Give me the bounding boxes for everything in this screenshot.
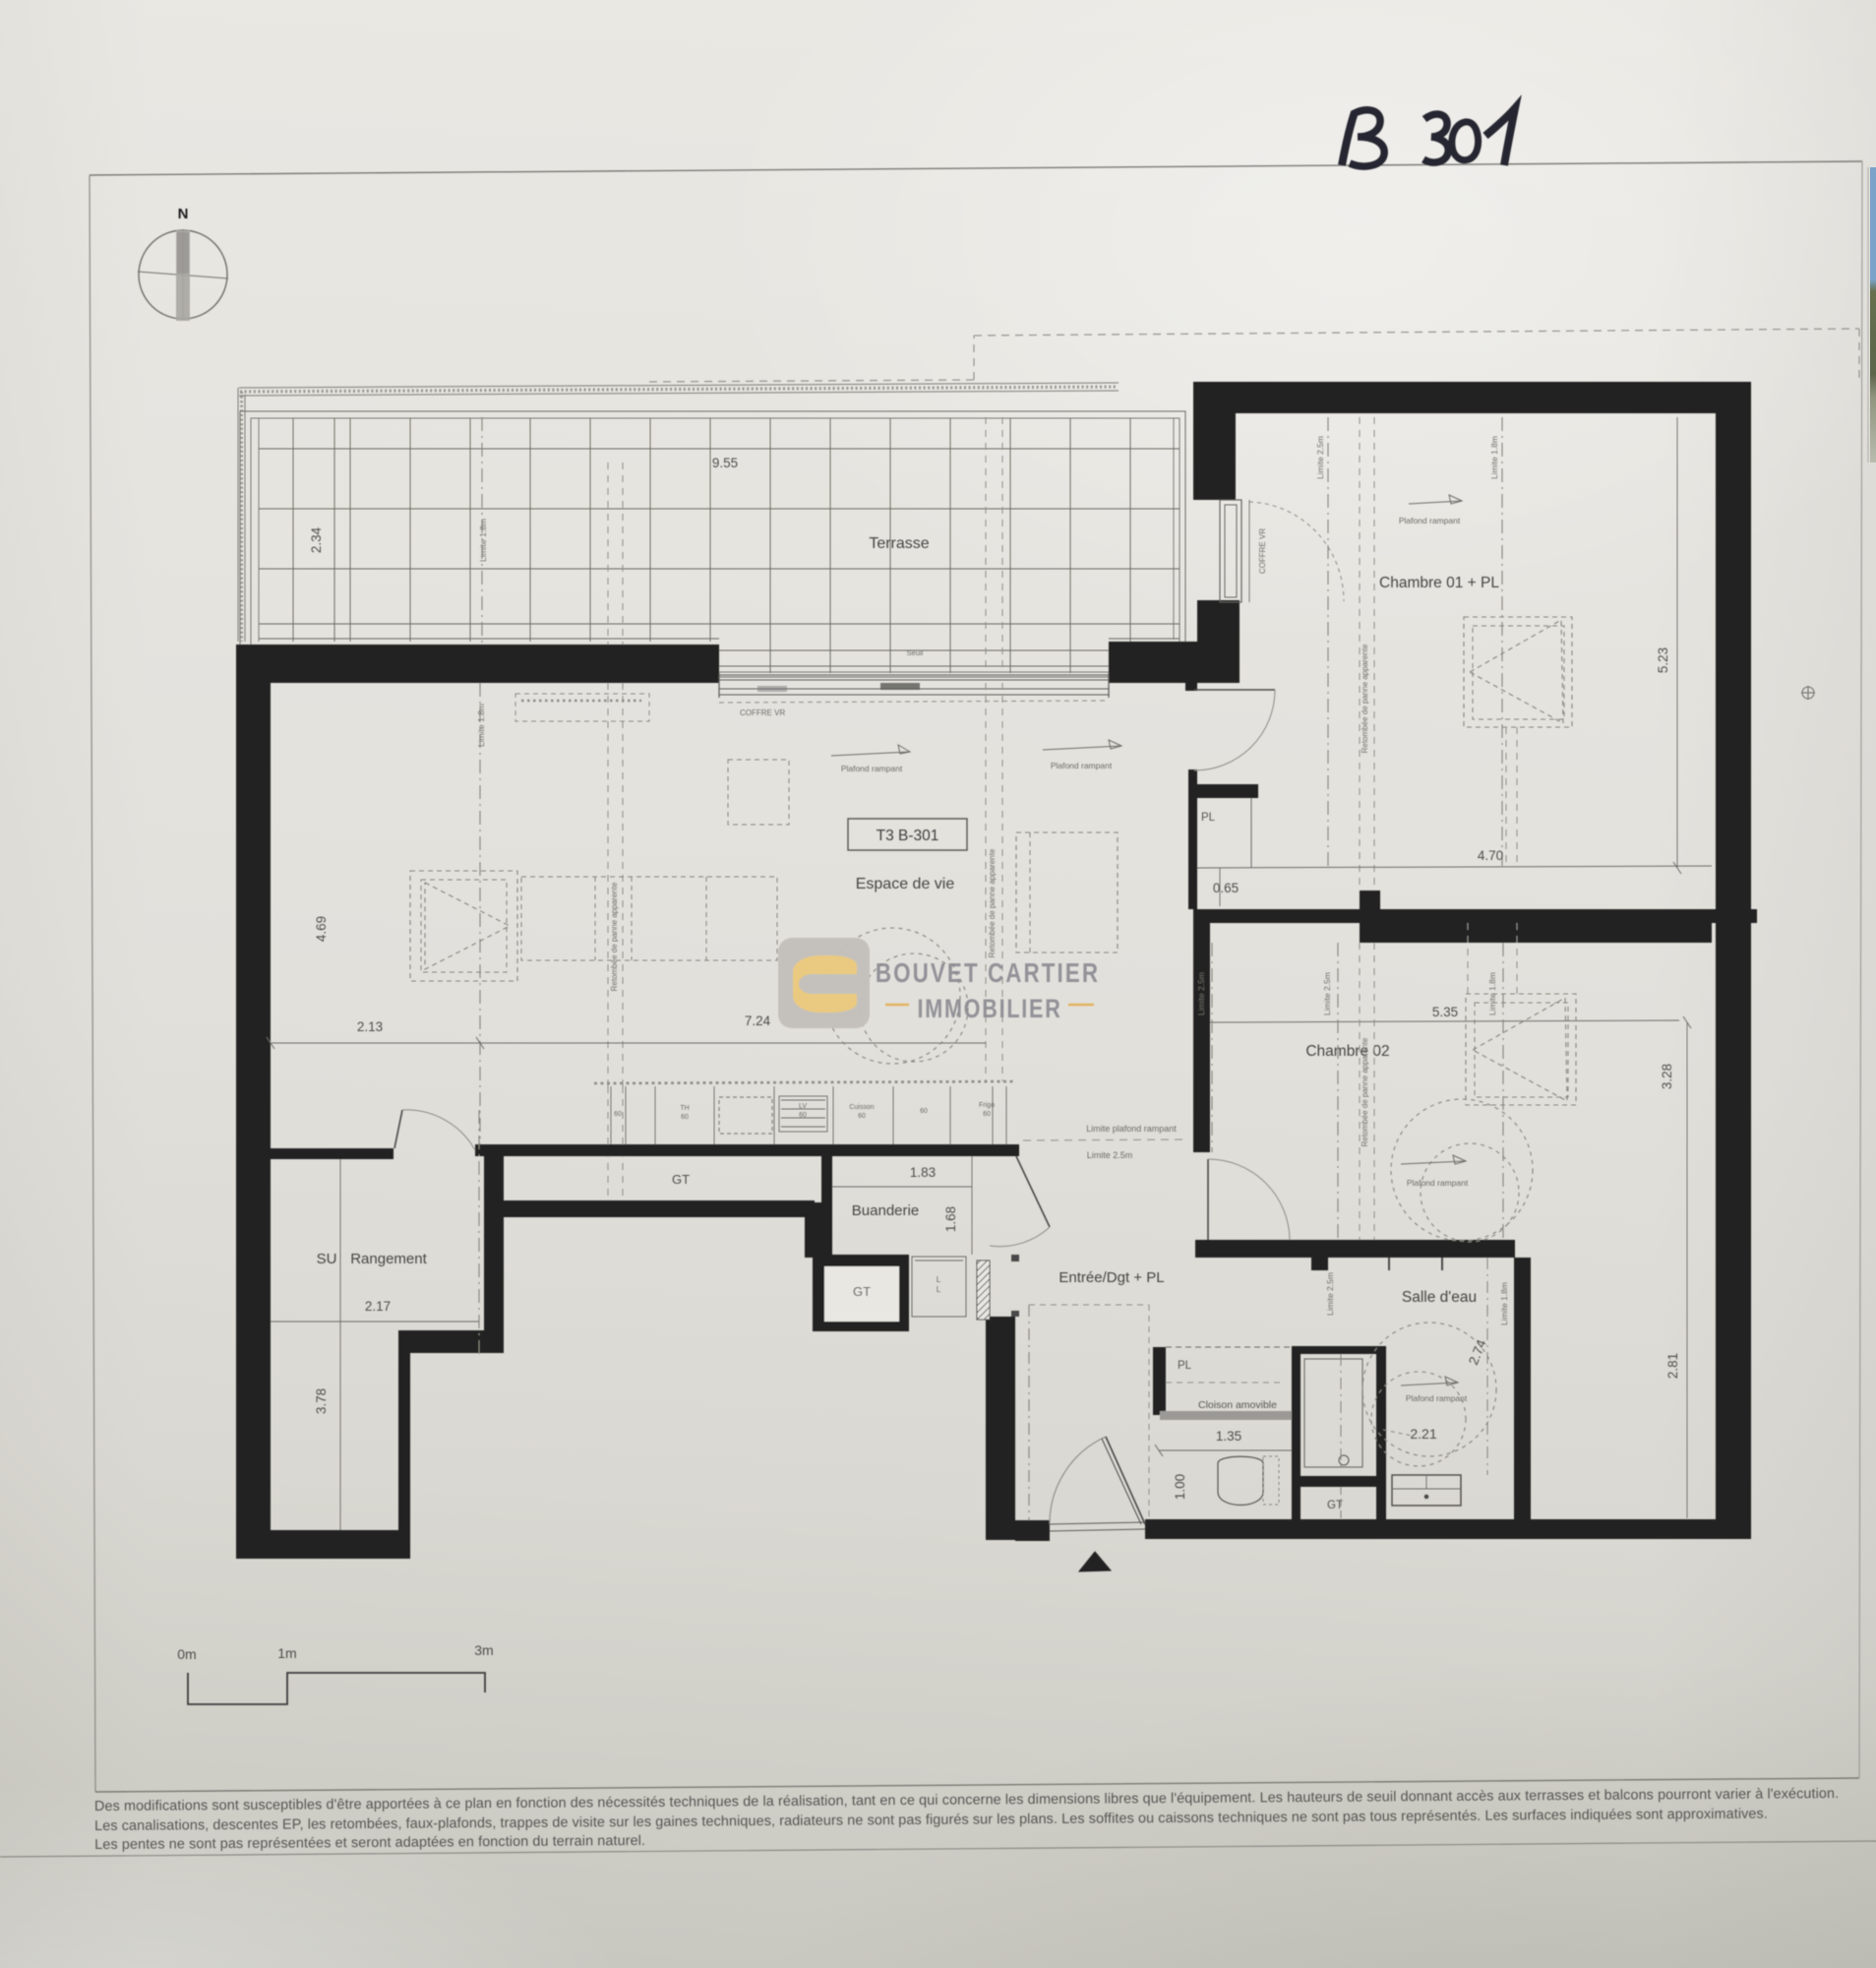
svg-text:TH: TH — [680, 1105, 689, 1112]
svg-text:Limite plafond rampant: Limite plafond rampant — [1086, 1124, 1177, 1134]
svg-text:Seuil: Seuil — [907, 648, 924, 657]
svg-text:Limite 2.5m: Limite 2.5m — [1196, 972, 1206, 1015]
svg-text:Limite 1.8m: Limite 1.8m — [1499, 1282, 1509, 1325]
svg-text:4.69: 4.69 — [314, 916, 329, 942]
svg-text:0m: 0m — [177, 1646, 196, 1662]
svg-text:60: 60 — [799, 1112, 807, 1119]
svg-text:Retombée de panne apparente: Retombée de panne apparente — [988, 848, 997, 957]
svg-text:L: L — [937, 1275, 941, 1284]
svg-text:60: 60 — [920, 1108, 928, 1115]
svg-text:5.35: 5.35 — [1432, 1005, 1458, 1019]
svg-text:60: 60 — [681, 1114, 689, 1121]
svg-text:2.21: 2.21 — [1410, 1426, 1436, 1442]
svg-text:BOUVET CARTIER: BOUVET CARTIER — [876, 958, 1100, 989]
svg-text:1.68: 1.68 — [943, 1206, 958, 1232]
svg-text:Plafond rampant: Plafond rampant — [841, 764, 903, 773]
svg-text:COFFRE VR: COFFRE VR — [1258, 528, 1267, 574]
svg-text:L: L — [937, 1285, 941, 1294]
svg-text:Retombée de panne apparente: Retombée de panne apparente — [610, 882, 619, 991]
svg-text:Chambre 01 + PL: Chambre 01 + PL — [1379, 575, 1499, 591]
svg-text:Plafond rampant: Plafond rampant — [1406, 1393, 1468, 1403]
svg-text:N: N — [178, 206, 189, 222]
svg-text:Retombée de panne apparente: Retombée de panne apparente — [1361, 1037, 1369, 1146]
svg-text:9.55: 9.55 — [712, 456, 738, 470]
svg-text:GT: GT — [672, 1172, 690, 1187]
svg-text:PL: PL — [1201, 812, 1216, 824]
svg-text:Limite 1.8m: Limite 1.8m — [1489, 436, 1499, 479]
svg-text:Espace de vie: Espace de vie — [856, 876, 955, 892]
svg-text:2.13: 2.13 — [357, 1019, 383, 1034]
svg-text:Chambre 02: Chambre 02 — [1305, 1043, 1389, 1060]
svg-text:T3 B-301: T3 B-301 — [877, 828, 939, 844]
svg-text:3.28: 3.28 — [1660, 1064, 1674, 1089]
svg-text:2.34: 2.34 — [309, 526, 324, 553]
svg-text:2.81: 2.81 — [1665, 1353, 1680, 1379]
svg-text:1.83: 1.83 — [910, 1165, 936, 1180]
svg-text:Cloison amovible: Cloison amovible — [1198, 1399, 1277, 1411]
svg-text:GT: GT — [853, 1284, 871, 1299]
svg-text:7.24: 7.24 — [745, 1014, 771, 1028]
svg-text:2.17: 2.17 — [365, 1299, 391, 1314]
svg-text:Limite 2.5m: Limite 2.5m — [1325, 1272, 1335, 1316]
svg-text:PL: PL — [1178, 1360, 1192, 1372]
svg-text:Limite 1.8m: Limite 1.8m — [478, 519, 488, 562]
svg-text:2.74: 2.74 — [1466, 1337, 1489, 1367]
svg-text:Rangement: Rangement — [350, 1251, 427, 1267]
svg-text:1.00: 1.00 — [1173, 1474, 1187, 1500]
svg-text:Limite 2.5m: Limite 2.5m — [1087, 1150, 1133, 1160]
svg-text:60: 60 — [614, 1111, 622, 1118]
svg-text:Entrée/Dgt + PL: Entrée/Dgt + PL — [1059, 1269, 1164, 1286]
svg-text:COFFRE VR: COFFRE VR — [740, 708, 785, 717]
svg-text:5.23: 5.23 — [1656, 647, 1670, 673]
svg-text:Limite 2.5m: Limite 2.5m — [1322, 972, 1332, 1015]
svg-text:60: 60 — [983, 1111, 991, 1118]
svg-text:3m: 3m — [474, 1642, 493, 1658]
svg-text:0.65: 0.65 — [1213, 881, 1239, 895]
svg-text:Terrasse: Terrasse — [869, 535, 929, 552]
svg-text:Cuisson: Cuisson — [849, 1104, 874, 1111]
svg-text:Plafond rampant: Plafond rampant — [1399, 516, 1461, 525]
svg-text:LV: LV — [799, 1103, 807, 1110]
svg-text:Limite 2.5m: Limite 2.5m — [1315, 436, 1325, 479]
svg-text:Salle d'eau: Salle d'eau — [1402, 1289, 1477, 1306]
svg-text:Les pentes ne sont pas représe: Les pentes ne sont pas représentées et s… — [94, 1833, 645, 1853]
svg-text:1.35: 1.35 — [1216, 1429, 1241, 1444]
svg-text:Limite 1.8m: Limite 1.8m — [476, 704, 486, 747]
svg-text:Frigo: Frigo — [979, 1102, 995, 1109]
svg-text:Plafond rampant: Plafond rampant — [1407, 1178, 1469, 1188]
svg-text:4.70: 4.70 — [1478, 848, 1503, 863]
svg-text:IMMOBILIER: IMMOBILIER — [917, 995, 1061, 1024]
svg-text:SU: SU — [317, 1251, 337, 1267]
svg-text:3.78: 3.78 — [314, 1388, 329, 1414]
svg-text:60: 60 — [858, 1113, 866, 1120]
svg-text:Buanderie: Buanderie — [852, 1202, 919, 1219]
svg-text:Plafond rampant: Plafond rampant — [1051, 761, 1113, 770]
svg-text:1m: 1m — [277, 1645, 296, 1661]
svg-text:Retombée de panne apparente: Retombée de panne apparente — [1361, 644, 1369, 753]
